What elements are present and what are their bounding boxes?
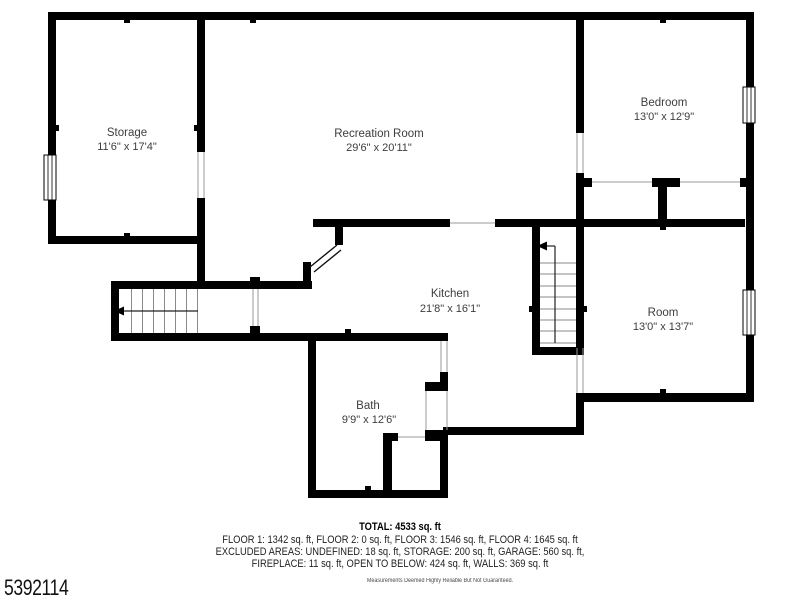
- wall: [308, 341, 316, 498]
- dimension-tick: [584, 306, 587, 312]
- window-icon-room: [743, 290, 755, 335]
- disclaimer-text: Measurements Deemed Highly Reliable But …: [116, 578, 764, 585]
- wall: [576, 393, 754, 402]
- room-dims-storage: 11'6" x 17'4": [97, 141, 157, 153]
- stair-treads: [540, 263, 576, 343]
- dimension-tick: [365, 486, 371, 490]
- wall: [197, 198, 205, 244]
- wall: [308, 490, 448, 498]
- wall: [495, 219, 745, 227]
- room-label-recreation: Recreation Room: [334, 128, 423, 140]
- room-dims-bedroom: 13'0" x 12'9": [634, 111, 694, 123]
- total-area-text: TOTAL: 4533 sq. ft: [60, 521, 740, 534]
- dimension-tick: [660, 20, 666, 23]
- wall: [313, 219, 450, 227]
- dimension-tick: [124, 20, 130, 23]
- room-dims-kitchen: 21'8" x 16'1": [420, 303, 480, 315]
- wall: [746, 12, 754, 87]
- wall: [250, 326, 260, 333]
- window-icon-storage: [44, 155, 56, 200]
- wall: [335, 227, 343, 245]
- dimension-tick: [345, 329, 351, 333]
- room-label-storage: Storage: [107, 127, 147, 139]
- wall: [383, 441, 392, 498]
- wall: [197, 12, 205, 152]
- wall: [111, 281, 312, 289]
- wall: [440, 441, 448, 498]
- wall: [425, 382, 448, 391]
- room-label-bath: Bath: [356, 400, 380, 412]
- wall: [425, 430, 448, 441]
- room-dims-bath: 9'9" x 12'6": [342, 414, 396, 426]
- floor-plan-canvas: Storage 11'6" x 17'4" Recreation Room 29…: [0, 0, 800, 600]
- staircase-left: [114, 289, 198, 333]
- wall: [746, 335, 754, 402]
- room-dims-recreation: 29'6" x 20'11": [346, 142, 412, 154]
- room-dims-room: 13'0" x 13'7": [633, 321, 693, 333]
- excluded-areas-text-2: FIREPLACE: 11 sq. ft, OPEN TO BELOW: 424…: [60, 558, 740, 571]
- room-label-kitchen: Kitchen: [431, 288, 469, 300]
- room-labels: Storage 11'6" x 17'4" Recreation Room 29…: [97, 97, 694, 426]
- wall: [532, 347, 584, 355]
- floor-plan-page: Storage 11'6" x 17'4" Recreation Room 29…: [0, 0, 800, 600]
- windows-layer: [44, 87, 755, 335]
- wall: [652, 178, 680, 187]
- room-label-bedroom: Bedroom: [641, 97, 688, 109]
- wall: [250, 277, 260, 281]
- wall: [576, 187, 584, 348]
- walls-layer: [48, 12, 754, 498]
- wall: [383, 433, 398, 441]
- wall: [658, 187, 667, 223]
- dimension-tick: [660, 389, 666, 393]
- staircase-center: [537, 242, 576, 344]
- door-diagonal-kitchen: [310, 245, 341, 272]
- wall: [48, 236, 205, 244]
- wall: [48, 12, 56, 155]
- dimension-tick: [124, 233, 130, 236]
- listing-id-watermark: 5392114: [4, 575, 68, 600]
- room-label-room: Room: [648, 307, 679, 319]
- wall: [576, 12, 584, 133]
- wall: [443, 427, 584, 435]
- dimension-tick: [660, 227, 666, 230]
- wall: [48, 12, 754, 20]
- dimension-tick: [529, 306, 532, 312]
- dimension-tick: [194, 125, 197, 131]
- wall: [746, 123, 754, 290]
- wall: [576, 178, 592, 187]
- dimension-tick: [250, 20, 256, 23]
- wall: [111, 333, 448, 341]
- window-icon-bedroom: [743, 87, 755, 123]
- wall: [303, 262, 311, 287]
- dimension-tick: [56, 125, 59, 131]
